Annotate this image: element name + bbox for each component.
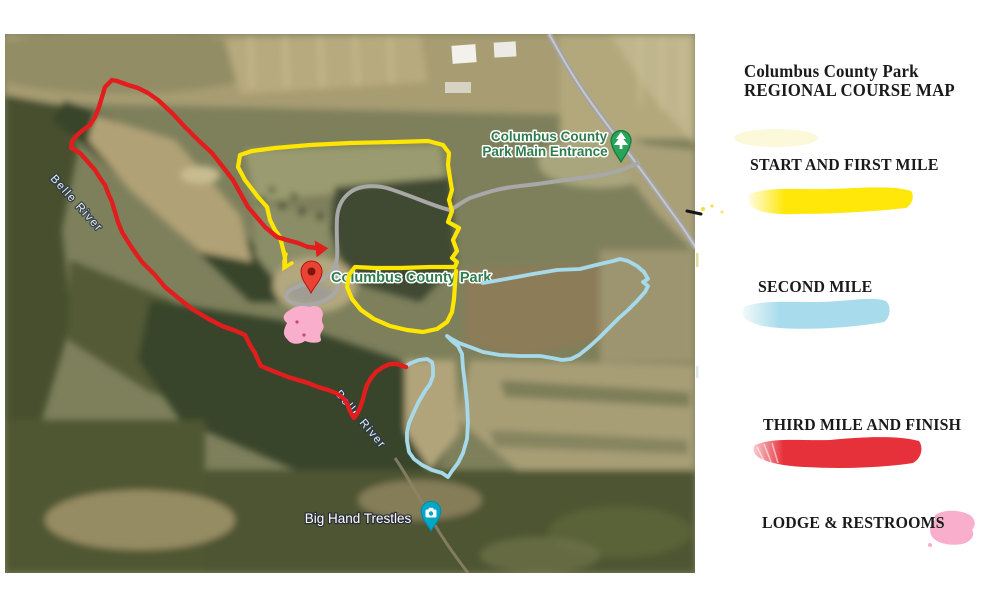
- swatch-first-mile: [749, 187, 913, 214]
- legend-title-line2: REGIONAL COURSE MAP: [744, 81, 955, 100]
- legend-item-third-mile: THIRD MILE AND FINISH: [763, 415, 961, 435]
- entrance-label-line1: Columbus County: [491, 129, 608, 144]
- entrance-label-line2: Park Main Entrance: [482, 144, 608, 159]
- swatch-lodge-speck: [928, 543, 932, 547]
- course-map-page: Belle River Belle River Columbus County …: [0, 0, 1002, 611]
- park-name-label: Columbus County Park: [331, 270, 492, 286]
- stray-smudge: [734, 129, 818, 147]
- map-edge-speck: [696, 366, 699, 378]
- satellite-map: Belle River Belle River Columbus County …: [0, 30, 696, 573]
- lodge-restrooms-blob: [284, 306, 324, 344]
- map-edge-speck: [696, 253, 699, 267]
- lodge-blob-speck: [302, 333, 305, 336]
- legend-item-second-mile: SECOND MILE: [758, 277, 872, 297]
- swatch-second-mile: [742, 299, 889, 329]
- legend-title-line1: Columbus County Park: [744, 62, 955, 81]
- lodge-blob-speck: [295, 320, 298, 323]
- legend-title: Columbus County Park REGIONAL COURSE MAP: [744, 62, 955, 99]
- trestles-label: Big Hand Trestles: [305, 511, 412, 526]
- legend-item-first-mile: START AND FIRST MILE: [750, 155, 939, 175]
- swatch-third-mile: [754, 437, 922, 468]
- legend-item-lodge: LODGE & RESTROOMS: [762, 513, 945, 533]
